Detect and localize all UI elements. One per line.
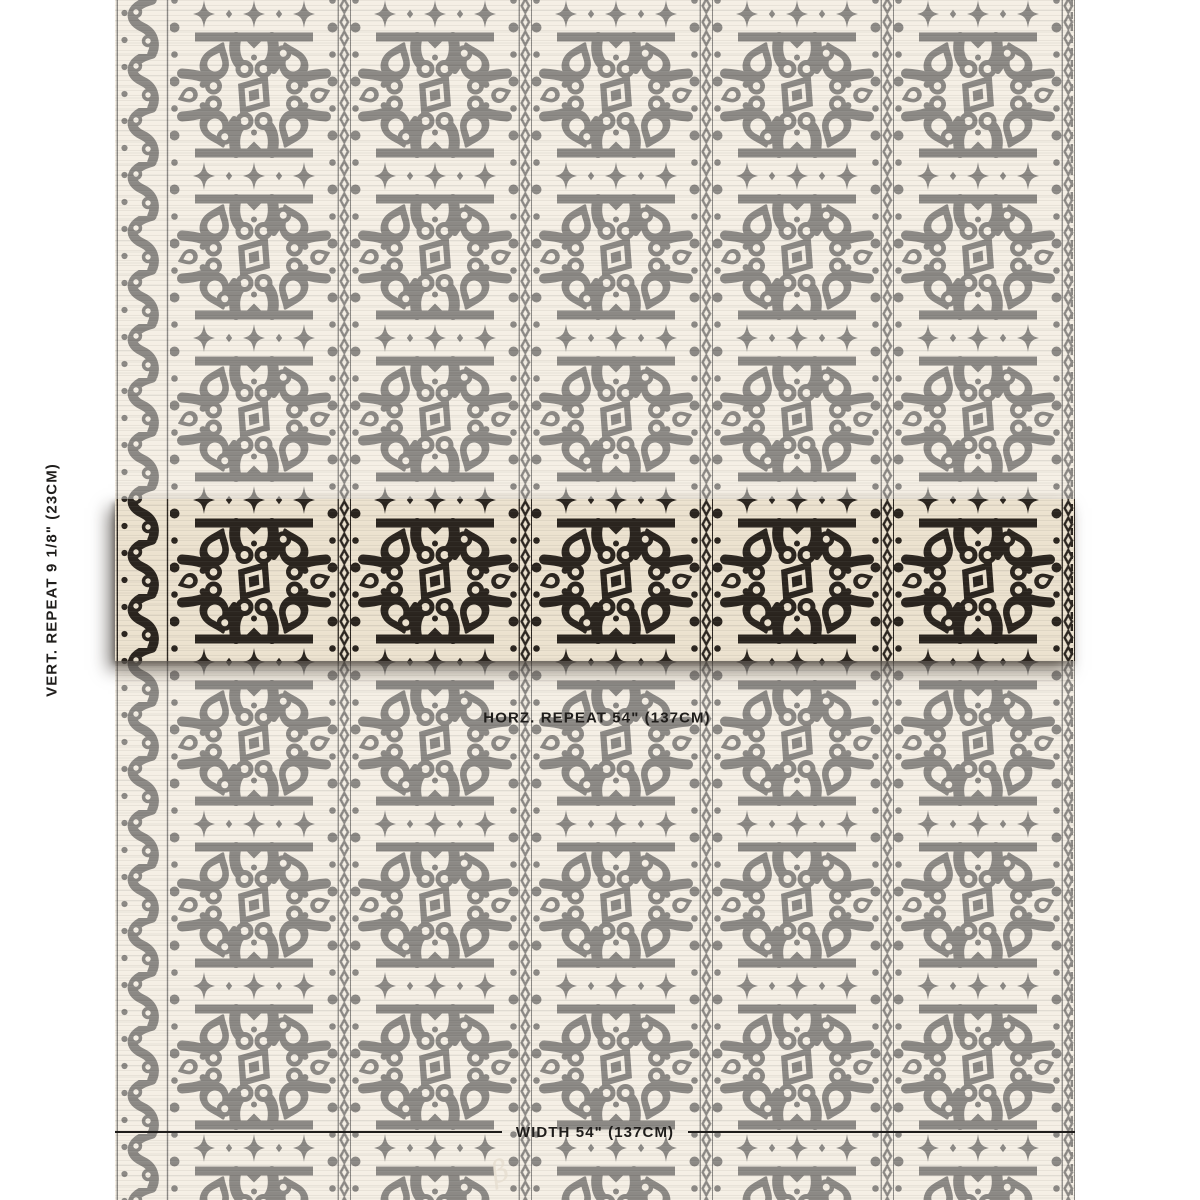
width-label: WIDTH 54" (137CM) [516, 1124, 674, 1141]
serpentine-border-stripe [115, 0, 170, 1200]
fabric-swatch [115, 0, 1075, 1200]
horz-repeat-label: HORZ. REPEAT 54" (137CM) [483, 710, 710, 727]
swatch-page: VERT. REPEAT 9 1/8" (23CM) HORZ. REPEAT … [0, 0, 1200, 1200]
motif-columns [170, 0, 1075, 1200]
width-rule-left [115, 1131, 502, 1133]
vert-repeat-label: VERT. REPEAT 9 1/8" (23CM) [44, 463, 61, 697]
width-rule-right [688, 1131, 1075, 1133]
width-annotation: WIDTH 54" (137CM) [115, 1123, 1075, 1141]
fabric-pattern-svg [115, 0, 1075, 1200]
